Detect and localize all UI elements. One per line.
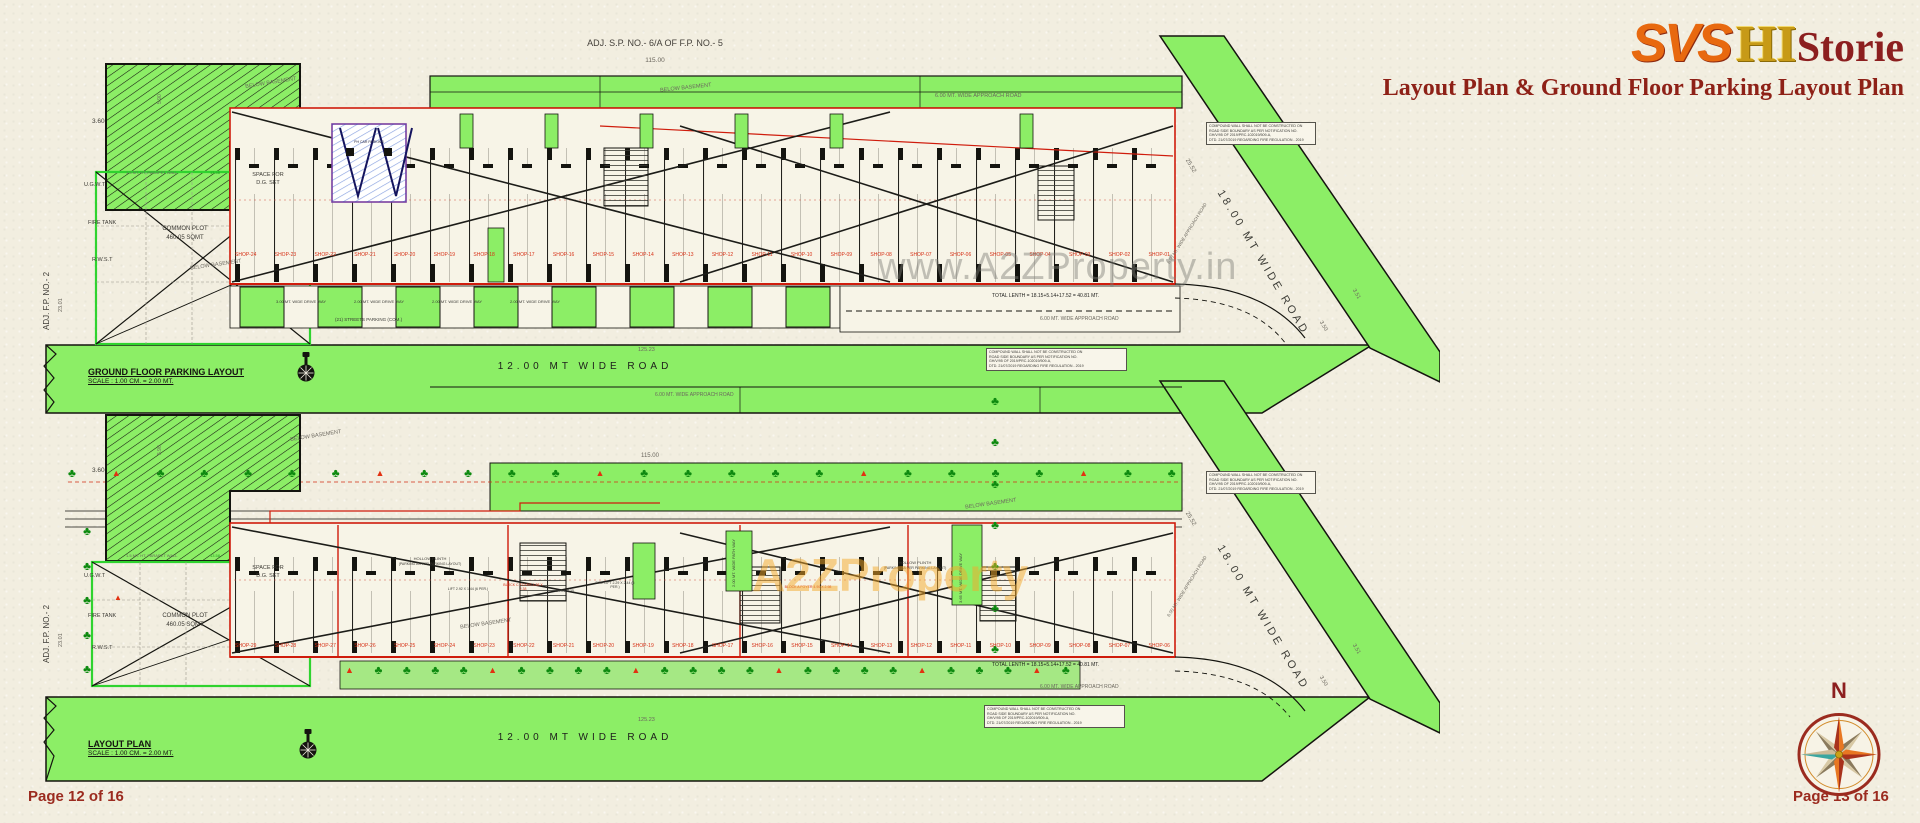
shop-label: SHOP-15 — [791, 643, 812, 649]
tree-icon: ▲ — [345, 666, 354, 676]
note-line: COMPOUND WALL SHALL NOT BE CONSTRUCTED O… — [1209, 124, 1313, 129]
ph-car-label: PH CAR PARKING — [336, 140, 402, 144]
compass-rose-graphic — [1784, 702, 1894, 807]
shop-label: SHOP-08 — [870, 252, 891, 258]
dimension-label: 115.00 — [470, 57, 840, 64]
dimension-label: 125.23 — [638, 347, 655, 353]
adjacent-left-label: ADJ. F.P. NO.- 2 — [42, 272, 51, 330]
svs-logo: SVSHIStorie — [1383, 16, 1904, 71]
tree-icon: ♣ — [947, 664, 955, 676]
tree-icon: ♣ — [815, 467, 823, 479]
tree-icon: ♣ — [420, 467, 428, 479]
tree-icon: ▲ — [774, 666, 783, 676]
shop-label: SHOP-08 — [1069, 643, 1090, 649]
tree-icon: ♣ — [832, 664, 840, 676]
shop-label: SHOP-20 — [394, 252, 415, 258]
tree-icon: ▲ — [595, 469, 604, 479]
shop-label: SHOP-21 — [553, 643, 574, 649]
total-length-label: TOTAL LENTH = 18.15+5.14+17.52 = 40.81 M… — [992, 663, 1099, 669]
approach-road-label: 6.00 MT. WIDE APPROACH ROAD — [1040, 685, 1119, 691]
shop-label: SHOP-13 — [672, 252, 693, 258]
shop-label: SHOP-02 — [1109, 252, 1130, 258]
shop-label: SHOP-03 — [1069, 252, 1090, 258]
logo-storie-text: Storie — [1797, 25, 1904, 71]
tree-row: ♣▲♣♣♣♣♣▲♣♣♣♣▲♣♣♣♣♣▲♣♣♣♣▲♣♣ — [68, 467, 1176, 479]
shop-labels-row: SHOP-24SHOP-23SHOP-22SHOP-21SHOP-20SHOP-… — [235, 252, 1170, 258]
adjacent-left-label: ADJ. F.P. NO.- 2 — [42, 605, 51, 663]
compound-wall-note: COMPOUND WALL SHALL NOT BE CONSTRUCTED O… — [1206, 122, 1316, 145]
approach-road-band — [430, 76, 1182, 108]
page-number-left: Page 12 of 16 — [28, 788, 124, 805]
shop-label: SHOP-05 — [990, 252, 1011, 258]
shop-label: SHOP-06 — [950, 252, 971, 258]
tree-icon: ♣ — [83, 560, 91, 572]
shop-label: SHOP-10 — [791, 252, 812, 258]
tree-icon: ♣ — [661, 664, 669, 676]
tree-icon: ♣ — [1168, 467, 1176, 479]
plan-title-block: LAYOUT PLAN SCALE : 1.00 CM. = 2.00 MT. — [88, 739, 173, 757]
tree-icon: ♣ — [904, 467, 912, 479]
shop-label: SHOP-23 — [473, 643, 494, 649]
approach-road-label: 6.00 MT. WIDE APPROACH ROAD — [935, 93, 1022, 99]
tree-icon: ♣ — [574, 664, 582, 676]
tree-column: ♣♣♣♣♣ — [80, 525, 94, 675]
tree-icon: ♣ — [83, 663, 91, 675]
shop-label: SHOP-12 — [712, 252, 733, 258]
tree-icon: ♣ — [83, 629, 91, 641]
driveway-label: 2.00 MT. WIDE DRIVE WAY — [422, 300, 492, 305]
shop-label: SHOP-17 — [513, 252, 534, 258]
shop-label: SHOP-22 — [314, 252, 335, 258]
logo-svs-text: SVS — [1631, 13, 1730, 73]
note-line: DTD. 21/07/2019 REGARDING FIRE REGULATIO… — [1209, 138, 1313, 143]
tree-icon: ♣ — [976, 664, 984, 676]
shop-label: SHOP-29 — [235, 643, 256, 649]
shop-label: SHOP-21 — [354, 252, 375, 258]
tree-icon: ♣ — [288, 467, 296, 479]
tree-icon: ▲ — [376, 469, 385, 479]
logo-hi-text: HI — [1736, 16, 1797, 73]
shop-label: SHOP-19 — [632, 643, 653, 649]
shop-label: SHOP-12 — [910, 643, 931, 649]
tree-icon: ♣ — [991, 602, 999, 614]
plan-title: LAYOUT PLAN — [88, 739, 173, 749]
tree-icon: ♣ — [403, 664, 411, 676]
tree-icon: ♣ — [991, 519, 999, 531]
approach-road-label: 6.00 MT. WIDE APPROACH ROAD — [1040, 317, 1119, 323]
tree-icon: ♣ — [460, 664, 468, 676]
tree-icon: ♣ — [804, 664, 812, 676]
tree-icon: ▲ — [488, 666, 497, 676]
tree-icon: ♣ — [374, 664, 382, 676]
approach-road-band — [430, 387, 1182, 413]
shop-label: SHOP-16 — [553, 252, 574, 258]
shop-label: SHOP-24 — [235, 252, 256, 258]
note-line: COMPOUND WALL SHALL NOT BE CONSTRUCTED O… — [1209, 473, 1313, 478]
shop-label: SHOP-09 — [831, 252, 852, 258]
dimension-label: 125.23 — [638, 717, 655, 723]
dimension-label: 3.60 — [92, 118, 105, 125]
tree-icon: ♣ — [728, 467, 736, 479]
tree-icon: ▲ — [859, 469, 868, 479]
tree-icon: ♣ — [546, 664, 554, 676]
north-label: N — [1784, 680, 1894, 702]
tree-row: ▲♣♣♣♣▲♣♣♣♣▲♣♣♣♣▲♣♣♣♣▲♣♣♣▲♣ — [345, 664, 1070, 676]
compound-wall-note: COMPOUND WALL SHALL NOT BE CONSTRUCTED O… — [1206, 471, 1316, 494]
tree-icon: ♣ — [1035, 467, 1043, 479]
shop-label: SHOP-14 — [632, 252, 653, 258]
tree-icon: ♣ — [991, 478, 999, 490]
ugwt-label: U.G.W.T — [84, 573, 105, 579]
shop-label: SHOP-23 — [275, 252, 296, 258]
layout-plan: 6.00 MT. WIDE APPROACH ROAD 115.00 ♣▲♣♣♣… — [40, 375, 1440, 805]
dimension-label: 13.58 — [210, 171, 220, 176]
shop-label: SHOP-15 — [593, 252, 614, 258]
tree-icon: ▲ — [1079, 469, 1088, 479]
shop-label: SHOP-22 — [513, 643, 534, 649]
tree-icon: ♣ — [746, 664, 754, 676]
page-title: Layout Plan & Ground Floor Parking Layou… — [1383, 75, 1904, 102]
compound-wall-note: COMPOUND WALL SHALL NOT BE CONSTRUCTED O… — [984, 705, 1125, 728]
tree-column: ♣♣♣♣♣♣♣ — [988, 395, 1002, 655]
shop-label: SHOP-27 — [314, 643, 335, 649]
common-plot-area: 460.05 SQMT — [145, 235, 225, 242]
note-line: DTD. 21/07/2019 REGARDING FIRE REGULATIO… — [1209, 487, 1313, 492]
shop-label: SHOP-18 — [672, 643, 693, 649]
tree-icon: ♣ — [200, 467, 208, 479]
shop-label: SHOP-10 — [990, 643, 1011, 649]
shop-label: SHOP-14 — [831, 643, 852, 649]
hollow-plinth-label: HOLLOW PLINTH (PARKING AS PER PARKING LA… — [370, 557, 490, 566]
tree-icon: ♣ — [772, 467, 780, 479]
shop-labels-row: SHOP-29SHOP-28SHOP-27SHOP-26SHOP-25SHOP-… — [235, 643, 1170, 649]
brand-header: SVSHIStorie Layout Plan & Ground Floor P… — [1383, 16, 1904, 102]
shop-label: SHOP-09 — [1029, 643, 1050, 649]
dg-space-label: SPACE FOR — [238, 172, 298, 178]
tree-icon: ♣ — [431, 664, 439, 676]
tree-icon: ♣ — [640, 467, 648, 479]
block-foyer-label: BLOCK C FOYER 4.38 X 2.38 — [500, 583, 546, 591]
tree-icon: ♣ — [603, 664, 611, 676]
adjacent-plot-label: ADJ. S.P. NO.- 6/A OF F.P. NO.- 5 — [470, 38, 840, 48]
tree-icon: ▲ — [112, 469, 121, 479]
shop-label: SHOP-07 — [1109, 643, 1130, 649]
shop-label: SHOP-17 — [712, 643, 733, 649]
shop-label: SHOP-19 — [434, 252, 455, 258]
tree-icon: ♣ — [861, 664, 869, 676]
parapet-label: 1.5 MT. HT. PARAPET WALL — [126, 171, 178, 176]
dimension-label: 5.90 — [158, 94, 164, 104]
shop-label: SHOP-01 — [1149, 252, 1170, 258]
scanned-plan-page: SVSHIStorie Layout Plan & Ground Floor P… — [0, 0, 1920, 823]
shop-label: SHOP-11 — [950, 643, 971, 649]
shop-label: SHOP-26 — [354, 643, 375, 649]
ground-floor-parking-plan: ADJ. S.P. NO.- 6/A OF F.P. NO.- 5 115.00… — [40, 30, 1440, 415]
shop-label: SHOP-13 — [871, 643, 892, 649]
parapet-label: 1.5 MT. HT. PARAPET WALL — [126, 554, 178, 559]
hollow-plinth-line: (PARKING AS PER PARKING LAYOUT) — [370, 562, 490, 566]
shop-label: SHOP-28 — [275, 643, 296, 649]
dimension-label: 3.60 — [92, 467, 105, 474]
block-foyer-label: BLOCK A FOYER 4.90 X 2.98 — [782, 585, 834, 589]
tree-icon: ♣ — [83, 525, 91, 537]
tree-icon: ♣ — [1124, 467, 1132, 479]
driveway-label: 2.00 MT. WIDE DRIVE WAY — [500, 300, 570, 305]
tree-icon: ♣ — [991, 395, 999, 407]
dg-space-label: D.G. SET — [238, 573, 298, 579]
shop-label: SHOP-04 — [1029, 252, 1050, 258]
common-plot-area: 460.05 SQMT — [145, 622, 225, 629]
tree-icon: ▲ — [631, 666, 640, 676]
rwst-label: R.W.S.T — [92, 645, 112, 651]
note-line: DTD. 21/07/2019 REGARDING FIRE REGULATIO… — [987, 721, 1122, 726]
handicap-parking-zone — [332, 124, 412, 202]
wide-road-label: 12.00 MT WIDE ROAD — [420, 732, 750, 744]
tree-icon: ♣ — [83, 594, 91, 606]
shop-label: SHOP-16 — [752, 643, 773, 649]
driveway-label: 2.00 MT. WIDE DRIVE WAY — [344, 300, 414, 305]
tree-icon: ♣ — [518, 664, 526, 676]
rwst-label: R.W.S.T — [92, 257, 112, 263]
tree-icon: ♣ — [157, 467, 165, 479]
fire-tank-label: FIRE TANK — [88, 220, 116, 226]
tree-icon: ♣ — [464, 467, 472, 479]
shop-label: SHOP-20 — [593, 643, 614, 649]
dimension-label: 13.58 — [210, 554, 220, 559]
dimension-label: 23.01 — [58, 633, 64, 647]
tree-icon: ♣ — [991, 436, 999, 448]
shop-label: SHOP-25 — [394, 643, 415, 649]
fire-tank-label: FIRE TANK — [88, 613, 116, 619]
wide-road-label: 12.00 MT WIDE ROAD — [420, 361, 750, 373]
plan-scale: SCALE : 1.00 CM. = 2.00 MT. — [88, 750, 173, 757]
dg-space-label: D.G. SET — [238, 180, 298, 186]
compass-rose: N — [1784, 680, 1894, 810]
shop-label: SHOP-11 — [752, 252, 773, 258]
tree-icon: ▲ — [918, 666, 927, 676]
tree-icon: ♣ — [332, 467, 340, 479]
tree-icon: ♣ — [948, 467, 956, 479]
total-length-label: TOTAL LENTH = 18.15+5.14+17.52 = 40.81 M… — [992, 294, 1099, 300]
common-plot-label: COMMON PLOT — [145, 226, 225, 233]
building-strip — [230, 503, 1175, 657]
shop-label: SHOP-18 — [473, 252, 494, 258]
shop-label: SHOP-24 — [434, 643, 455, 649]
tree-icon: ♣ — [684, 467, 692, 479]
lift-label: LIFT 2.92 X 1.44 (6 PER.) — [444, 587, 492, 591]
tree-icon: ♣ — [889, 664, 897, 676]
driveway-label: 3.00 MT. WIDE DRIVE WAY — [266, 300, 336, 305]
tree-icon: ♣ — [68, 467, 76, 479]
dimension-label: 115.00 — [560, 453, 740, 460]
tree-icon: ♣ — [244, 467, 252, 479]
tree-icon: ♣ — [552, 467, 560, 479]
warning-triangle-icon: ▲ — [114, 593, 122, 602]
path-way-label: 2.00 MT. WIDE PATH WAY — [732, 539, 737, 587]
common-plot-label: COMMON PLOT — [145, 613, 225, 620]
ugwt-label: U.G.W.T — [84, 182, 105, 188]
dimension-label: 23.01 — [58, 298, 64, 312]
tree-icon: ♣ — [718, 664, 726, 676]
tree-icon: ♣ — [508, 467, 516, 479]
shop-label: SHOP-06 — [1149, 643, 1170, 649]
tree-icon: ♣ — [991, 560, 999, 572]
dg-space-label: SPACE FOR — [238, 565, 298, 571]
tree-icon: ♣ — [689, 664, 697, 676]
approach-road-label: 6.00 MT. WIDE APPROACH ROAD — [655, 393, 734, 399]
fire-lift-label: FIRE LIFT 2.29 X 2.44 (6 PER.) — [592, 581, 638, 589]
streets-parking-label: (21) STREETS PARKING (COM.) — [335, 317, 402, 322]
unit-dimension-label: 3.15 X 2.35 — [556, 589, 574, 593]
dimension-label: 5.90 — [158, 445, 164, 455]
compound-wall-note: COMPOUND WALL SHALL NOT BE CONSTRUCTED O… — [986, 348, 1127, 371]
drive-way-label: 3.65 MT. WIDE DRIVE WAY — [959, 553, 964, 603]
note-line: DTD. 21/07/2019 REGARDING FIRE REGULATIO… — [989, 364, 1124, 369]
shop-label: SHOP-07 — [910, 252, 931, 258]
